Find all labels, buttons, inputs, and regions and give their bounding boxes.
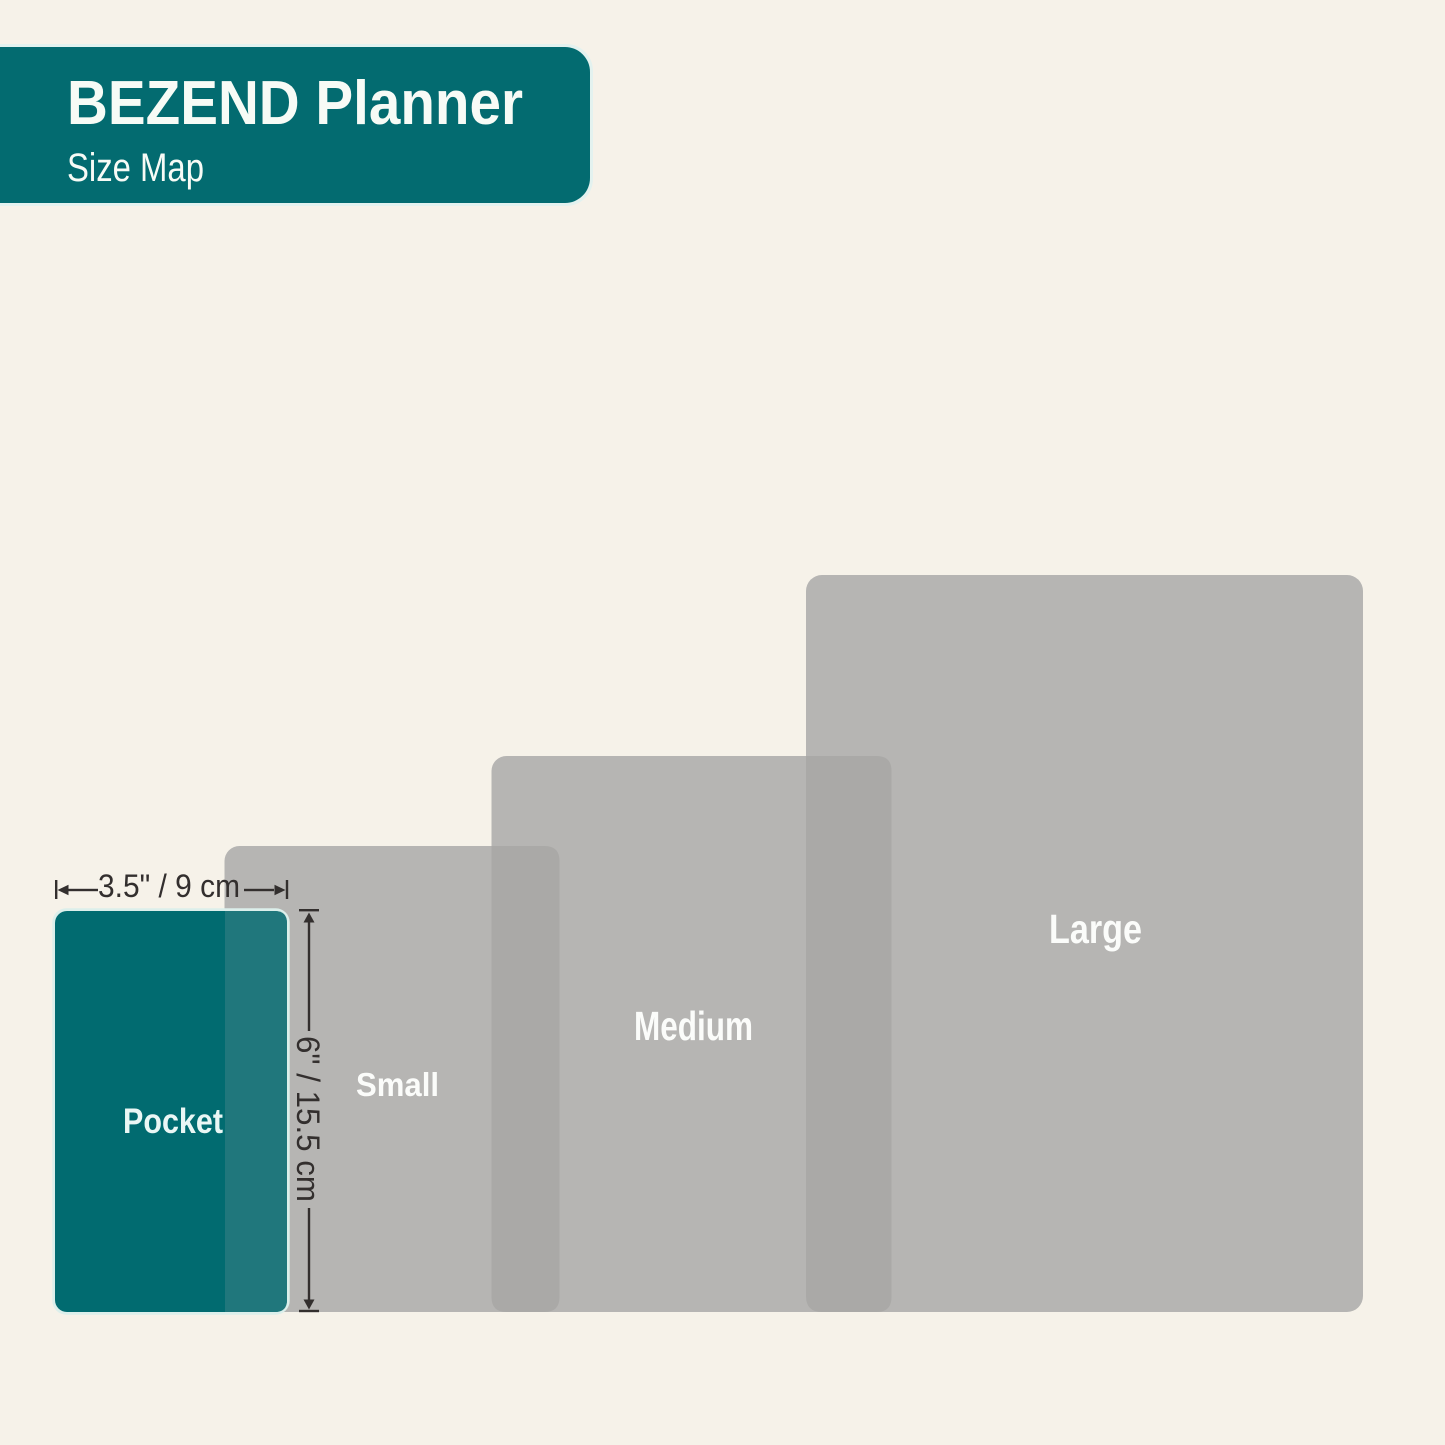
svg-text:6" / 15.5 cm: 6" / 15.5 cm — [290, 1036, 326, 1202]
svg-text:3.5" / 9 cm: 3.5" / 9 cm — [98, 868, 240, 904]
svg-text:Pocket: Pocket — [123, 1102, 223, 1141]
svg-text:Large: Large — [1049, 906, 1142, 952]
svg-text:BEZEND Planner: BEZEND Planner — [67, 69, 523, 138]
svg-text:Size Map: Size Map — [67, 146, 204, 190]
svg-text:Small: Small — [356, 1066, 439, 1103]
svg-text:Medium: Medium — [634, 1003, 753, 1049]
